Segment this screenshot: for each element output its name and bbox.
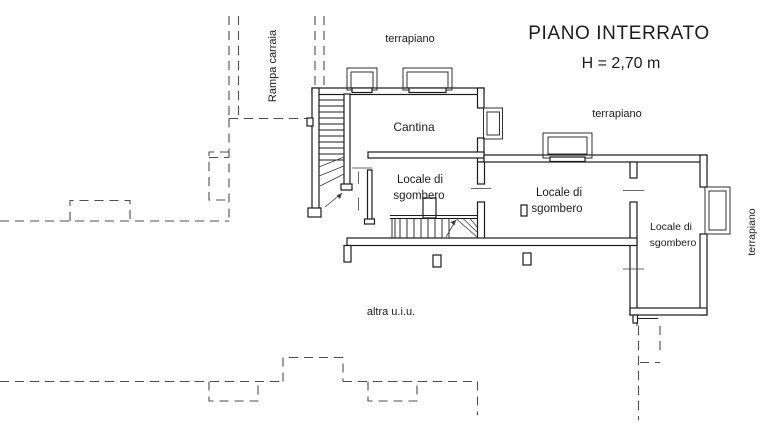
room-label-storage-middle: Locale di sgombero xyxy=(531,187,582,215)
svg-text:Locale di: Locale di xyxy=(397,174,443,186)
svg-text:sgombero: sgombero xyxy=(393,190,444,202)
svg-text:Locale di: Locale di xyxy=(536,187,582,199)
column xyxy=(521,205,527,216)
room-label-cantina: Cantina xyxy=(393,120,435,134)
ceiling-height-label: H = 2,70 m xyxy=(582,55,661,72)
window-well xyxy=(403,68,452,90)
terrace-label-top: terrapiano xyxy=(385,33,435,45)
terrace-label-middle: terrapiano xyxy=(592,108,642,120)
walls xyxy=(307,88,707,326)
svg-text:sgombero: sgombero xyxy=(650,237,697,249)
window-well xyxy=(347,68,377,90)
dashed-site-lines xyxy=(0,16,660,420)
pillar xyxy=(433,255,441,267)
svg-text:sgombero: sgombero xyxy=(531,203,582,215)
other-unit-label: altra u.i.u. xyxy=(367,306,415,318)
room-label-storage-left: Locale di sgombero xyxy=(393,174,444,202)
upper-staircase xyxy=(319,100,344,207)
floor-plan-page: PIANO INTERRATO H = 2,70 m terrapiano te… xyxy=(0,0,782,429)
lower-staircase xyxy=(390,216,478,239)
svg-text:Locale di: Locale di xyxy=(650,221,692,233)
page-title: PIANO INTERRATO xyxy=(528,23,709,44)
room-label-storage-right: Locale di sgombero xyxy=(650,221,697,249)
pillar xyxy=(523,253,531,265)
terrace-label-right: terrapiano xyxy=(746,208,758,255)
door-leaf xyxy=(368,170,373,220)
floor-plan-drawing: PIANO INTERRATO H = 2,70 m terrapiano te… xyxy=(0,0,782,429)
ramp-label: Rampa carraia xyxy=(267,29,279,102)
